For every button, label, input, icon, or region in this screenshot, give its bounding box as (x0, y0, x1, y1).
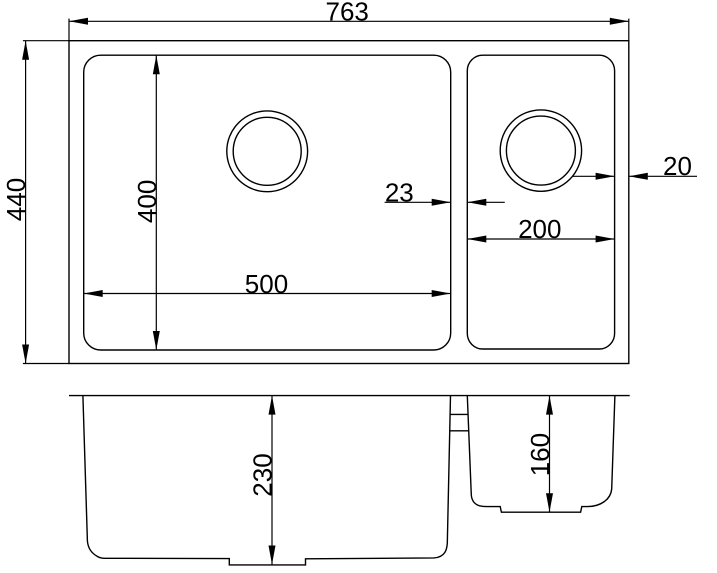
svg-text:160: 160 (525, 433, 555, 476)
svg-text:440: 440 (1, 178, 31, 221)
svg-text:20: 20 (663, 151, 692, 181)
svg-text:763: 763 (326, 0, 369, 27)
svg-text:400: 400 (132, 180, 162, 223)
svg-text:23: 23 (385, 178, 414, 208)
svg-text:230: 230 (248, 453, 278, 496)
svg-text:500: 500 (245, 269, 288, 299)
svg-text:200: 200 (518, 214, 561, 244)
